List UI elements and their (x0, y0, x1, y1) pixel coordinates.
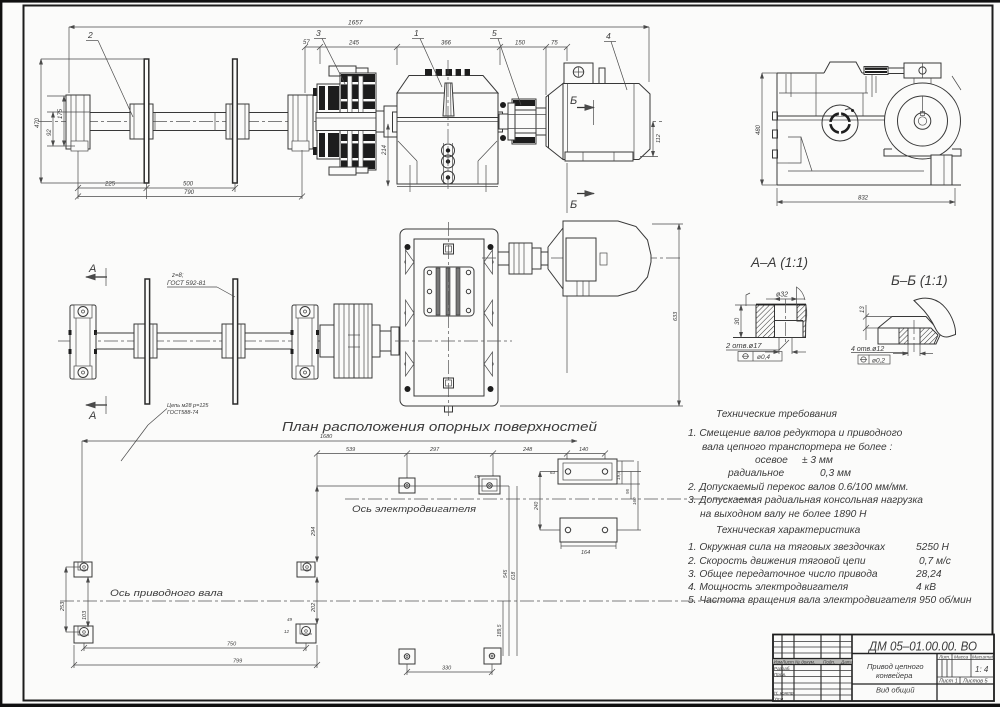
svg-text:4. Мощность электродвигателя: 4. Мощность электродвигателя (688, 582, 849, 593)
svg-text:Масса: Масса (954, 655, 969, 661)
svg-text:112: 112 (656, 134, 662, 143)
svg-text:Разраб.: Разраб. (774, 666, 791, 671)
svg-text:5250 Н: 5250 Н (916, 542, 949, 553)
svg-text:на выходном валу не более 189: на выходном валу не более 1890 Н (700, 508, 867, 520)
svg-text:175: 175 (58, 108, 64, 119)
svg-text:Технические требования: Технические требования (716, 408, 837, 420)
svg-text:189,5: 189,5 (497, 624, 503, 637)
svg-text:75: 75 (551, 41, 558, 47)
svg-text:Н. контр.: Н. контр. (774, 690, 795, 695)
svg-text:5: 5 (492, 28, 497, 38)
svg-text:1657: 1657 (348, 20, 363, 27)
svg-text:618: 618 (511, 571, 517, 580)
svg-text:ИзмЛист: ИзмЛист (774, 660, 795, 665)
svg-text:2: 2 (87, 30, 93, 40)
svg-text:4 кВ: 4 кВ (916, 582, 936, 593)
svg-text:0,3 мм: 0,3 мм (820, 468, 851, 479)
svg-text:Техническая характеристика: Техническая характеристика (716, 525, 861, 536)
svg-text:19,5: 19,5 (616, 471, 621, 480)
svg-text:832: 832 (858, 196, 869, 202)
svg-text:253: 253 (60, 601, 66, 612)
svg-text:1: 1 (414, 28, 419, 38)
svg-text:297: 297 (429, 447, 440, 453)
svg-text:Подп.: Подп. (823, 660, 835, 665)
svg-text:633: 633 (673, 311, 679, 321)
svg-text:150: 150 (515, 41, 526, 47)
svg-text:202: 202 (311, 603, 317, 613)
svg-text:Лист 1: Лист 1 (938, 679, 958, 685)
svg-text:1: 4: 1: 4 (975, 665, 989, 674)
svg-text:№ докум.: № докум. (795, 660, 815, 665)
svg-text:Листов 5: Листов 5 (962, 679, 989, 685)
svg-text:ДМ 05–01.00.00. ВО: ДМ 05–01.00.00. ВО (867, 639, 977, 654)
svg-text:2 отв.ø17: 2 отв.ø17 (725, 341, 762, 350)
svg-text:Б: Б (570, 95, 577, 107)
svg-text:160: 160 (632, 497, 637, 505)
svg-text:Б: Б (570, 199, 577, 211)
svg-text:57: 57 (303, 40, 310, 46)
svg-text:ГОСТ588-74: ГОСТ588-74 (167, 410, 198, 416)
svg-text:294: 294 (311, 527, 317, 537)
svg-text:Утв.: Утв. (774, 696, 784, 701)
svg-text:92: 92 (47, 129, 53, 136)
svg-text:2. Допускаемый перекос вало: 2. Допускаемый перекос валов 0.6/100 мм/… (687, 482, 909, 493)
svg-text:63: 63 (550, 470, 556, 475)
svg-text:480: 480 (756, 124, 762, 135)
svg-text:5. Частота вращения вала элек: 5. Частота вращения вала электродвигател… (688, 594, 972, 606)
svg-text:вала цепного транспортера не б: вала цепного транспортера не более : (702, 441, 892, 453)
svg-text:± 3 мм: ± 3 мм (802, 455, 833, 466)
svg-text:214: 214 (382, 144, 388, 156)
svg-text:А: А (88, 263, 96, 275)
svg-text:470: 470 (35, 117, 41, 128)
svg-text:z=8;: z=8; (171, 273, 184, 279)
svg-text:103: 103 (82, 610, 88, 620)
svg-text:1. Смещение валов редуктора: 1. Смещение валов редуктора и приводного (688, 428, 903, 439)
svg-text:Лит.: Лит. (938, 655, 950, 661)
svg-text:Привод цепного: Привод цепного (867, 662, 924, 671)
svg-text:12: 12 (284, 629, 290, 634)
svg-text:А: А (88, 410, 96, 422)
svg-text:Дата: Дата (840, 660, 854, 665)
svg-text:750: 750 (227, 642, 237, 648)
svg-text:0,7 м/с: 0,7 м/с (919, 556, 951, 567)
svg-text:1. Окружная сила на тяговых з: 1. Окружная сила на тяговых звездочках (688, 542, 886, 553)
svg-text:30: 30 (734, 317, 741, 325)
svg-text:Ось электродвигателя: Ось электродвигателя (352, 504, 476, 515)
svg-text:План расположения опорных пове: План расположения опорных поверхностей (282, 420, 597, 434)
svg-text:Пров.: Пров. (774, 672, 786, 677)
svg-text:4: 4 (606, 31, 611, 41)
svg-text:545: 545 (503, 569, 509, 578)
svg-text:Масштаб: Масштаб (972, 655, 995, 661)
svg-text:28,24: 28,24 (915, 569, 942, 580)
svg-text:248: 248 (522, 447, 533, 453)
svg-text:164: 164 (581, 550, 590, 556)
svg-text:13: 13 (860, 306, 866, 313)
svg-text:осевое: осевое (755, 455, 788, 466)
svg-text:ø32: ø32 (776, 292, 788, 299)
svg-text:225: 225 (104, 182, 116, 188)
svg-text:1680: 1680 (320, 434, 333, 440)
svg-text:4 отв.ø12: 4 отв.ø12 (851, 346, 884, 353)
svg-text:ø0,2: ø0,2 (872, 357, 885, 364)
svg-text:ø0,4: ø0,4 (757, 354, 770, 361)
svg-text:3: 3 (316, 28, 321, 38)
svg-text:500: 500 (183, 182, 194, 188)
svg-text:140: 140 (579, 447, 589, 453)
svg-text:539: 539 (346, 447, 355, 453)
svg-text:790: 790 (184, 190, 195, 196)
svg-text:330: 330 (442, 666, 452, 672)
svg-text:Цепь м28 p=125: Цепь м28 p=125 (167, 403, 209, 409)
svg-text:Ось приводного вала: Ось приводного вала (110, 588, 223, 599)
svg-text:А–А (1:1): А–А (1:1) (750, 255, 808, 270)
svg-text:3. Общее передаточное число п: 3. Общее передаточное число привода (688, 568, 878, 580)
svg-text:49: 49 (287, 617, 293, 622)
svg-text:конвейера: конвейера (876, 671, 912, 680)
svg-text:ГОСТ 592-81: ГОСТ 592-81 (167, 280, 206, 287)
svg-text:радиальное: радиальное (727, 468, 785, 479)
svg-text:799: 799 (233, 659, 242, 665)
svg-text:2. Скорость движения тяговой: 2. Скорость движения тяговой цепи (687, 556, 866, 567)
svg-text:366: 366 (441, 41, 452, 47)
svg-text:240: 240 (534, 501, 540, 511)
svg-text:Б–Б (1:1): Б–Б (1:1) (891, 273, 948, 288)
svg-text:Вид общий: Вид общий (876, 686, 915, 695)
svg-text:245: 245 (348, 41, 360, 47)
svg-text:3. Допускаемая радиальная к: 3. Допускаемая радиальная консольная наг… (688, 495, 923, 506)
svg-text:95: 95 (625, 488, 630, 494)
